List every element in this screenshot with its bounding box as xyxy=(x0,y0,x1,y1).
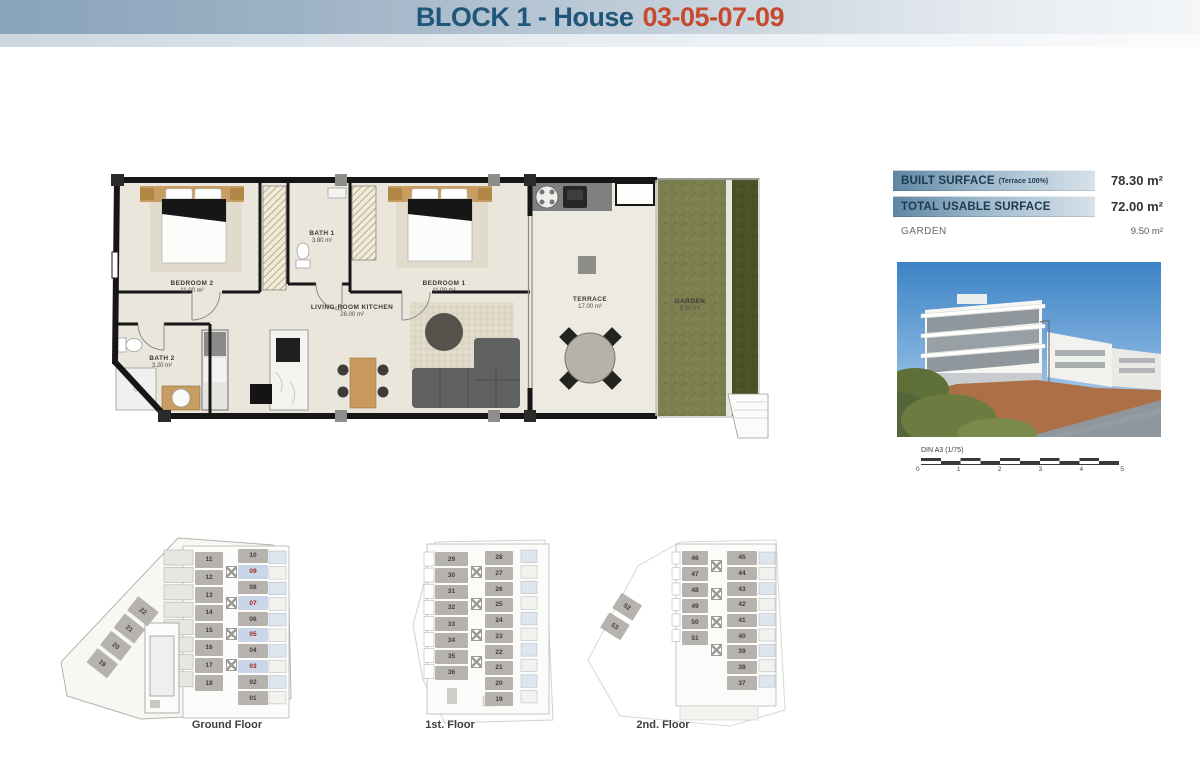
elevator-icon xyxy=(471,656,482,668)
room-label-living: LIVING-ROOM KITCHEN 26.00 m² xyxy=(297,304,407,318)
scale-bar-segments xyxy=(921,461,1119,464)
unit: 42 xyxy=(727,598,757,612)
elevator-icon xyxy=(711,644,722,656)
elevator-icon xyxy=(226,566,237,578)
unit: 34 xyxy=(435,633,468,647)
elevator-icon xyxy=(711,588,722,600)
second-floor-left-units: 464748495051 xyxy=(682,551,708,645)
elevator-icon xyxy=(711,616,722,628)
room-label-terrace: TERRACE 17.00 m² xyxy=(560,296,620,310)
unit: 10 xyxy=(238,549,268,563)
room-label-bath2: BATH 2 3.20 m² xyxy=(132,355,192,369)
first-floor-label: 1st. Floor xyxy=(385,719,515,731)
brochure-page: BLOCK 1 - House 03-05-07-09 xyxy=(0,0,1200,760)
unit: 46 xyxy=(682,551,708,565)
surface-row-band: BUILT SURFACE (Terrace 100%) xyxy=(893,170,1095,191)
second-floor-right-units: 454443424140393837 xyxy=(727,551,757,690)
unit: 09 xyxy=(238,565,268,579)
unit: 16 xyxy=(195,640,223,656)
unit: 50 xyxy=(682,615,708,629)
unit: 44 xyxy=(727,567,757,581)
scale-label: DIN A3 (1/75) xyxy=(921,447,963,454)
surface-row-usable: TOTAL USABLE SURFACE 72.00 m² xyxy=(893,196,1165,217)
wardrobe-icon xyxy=(263,186,286,290)
sofa-icon xyxy=(410,302,520,408)
unit: 20 xyxy=(485,677,513,691)
unit: 28 xyxy=(485,551,513,565)
unit: 13 xyxy=(195,587,223,603)
ground-floor-label: Ground Floor xyxy=(162,719,292,731)
tick: 1 xyxy=(957,466,961,473)
unit: 45 xyxy=(727,551,757,565)
surface-row-band: TOTAL USABLE SURFACE xyxy=(893,196,1095,217)
unit: 19 xyxy=(485,692,513,706)
stairs-icon xyxy=(728,394,768,438)
unit: 49 xyxy=(682,599,708,613)
tick: 2 xyxy=(998,466,1002,473)
unit: 03 xyxy=(238,660,268,674)
unit: 27 xyxy=(485,567,513,581)
surface-value: 72.00 m² xyxy=(1111,196,1163,217)
elevator-icon xyxy=(471,566,482,578)
room-label-bedroom2: BEDROOM 2 11.00 m² xyxy=(152,280,232,294)
unit: 06 xyxy=(238,612,268,626)
unit: 32 xyxy=(435,601,468,615)
surface-label: GARDEN xyxy=(901,226,947,237)
tick: 3 xyxy=(1039,466,1043,473)
surface-row-built: BUILT SURFACE (Terrace 100%) 78.30 m² xyxy=(893,170,1165,191)
first-floor-right-units: 28272625242322212019 xyxy=(485,551,513,706)
unit: 21 xyxy=(485,661,513,675)
unit: 25 xyxy=(485,598,513,612)
elevator-icon xyxy=(226,659,237,671)
surface-value: 9.50 m² xyxy=(1131,222,1163,240)
scale-ticks: 012345 xyxy=(916,466,1124,473)
unit: 38 xyxy=(727,661,757,675)
unit: 26 xyxy=(485,582,513,596)
unit: 47 xyxy=(682,567,708,581)
unit: 02 xyxy=(238,675,268,689)
unit: 36 xyxy=(435,666,468,680)
elevator-icon xyxy=(471,598,482,610)
unit: 04 xyxy=(238,644,268,658)
room-label-garden: GARDEN 9.50 m² xyxy=(660,298,720,312)
unit: 07 xyxy=(238,596,268,610)
unit: 40 xyxy=(727,629,757,643)
room-label-bath1: BATH 1 3.80 m² xyxy=(294,230,350,244)
tick: 5 xyxy=(1120,466,1124,473)
surface-label: TOTAL USABLE SURFACE xyxy=(901,201,1051,213)
unit: 24 xyxy=(485,614,513,628)
unit: 39 xyxy=(727,645,757,659)
elevator-icon xyxy=(711,560,722,572)
unit: 08 xyxy=(238,581,268,595)
unit: 18 xyxy=(195,675,223,691)
surface-label: BUILT SURFACE xyxy=(901,175,995,187)
unit: 43 xyxy=(727,582,757,596)
elevator-icon xyxy=(226,628,237,640)
unit: 22 xyxy=(485,645,513,659)
unit: 17 xyxy=(195,658,223,674)
unit: 29 xyxy=(435,552,468,566)
elevator-icon xyxy=(226,597,237,609)
unit: 48 xyxy=(682,583,708,597)
tick: 4 xyxy=(1080,466,1084,473)
unit: 05 xyxy=(238,628,268,642)
bedroom2-bed-icon xyxy=(140,186,244,272)
ground-floor-mid-units: 1112131415161718 xyxy=(195,552,223,691)
header-banner-fade xyxy=(0,34,1200,47)
unit: 01 xyxy=(238,691,268,705)
unit: 15 xyxy=(195,623,223,639)
page-title-houses: 03-05-07-09 xyxy=(642,2,784,33)
building-photo xyxy=(897,262,1161,437)
surface-row-garden: GARDEN 9.50 m² xyxy=(893,222,1165,240)
tick: 0 xyxy=(916,466,920,473)
unit: 12 xyxy=(195,570,223,586)
unit: 35 xyxy=(435,650,468,664)
first-floor-left-units: 2930313233343536 xyxy=(435,552,468,680)
unit: 14 xyxy=(195,605,223,621)
unit: 23 xyxy=(485,630,513,644)
unit: 30 xyxy=(435,568,468,582)
unit: 51 xyxy=(682,631,708,645)
page-title: BLOCK 1 - House xyxy=(416,2,634,33)
elevator-icon xyxy=(471,629,482,641)
scale-bar xyxy=(921,458,1119,465)
room-label-bedroom1: BEDROOM 1 11.00 m² xyxy=(404,280,484,294)
surface-value: 78.30 m² xyxy=(1111,170,1163,191)
second-floor-label: 2nd. Floor xyxy=(598,719,728,731)
unit: 41 xyxy=(727,614,757,628)
ground-floor-right-units: 10090807060504030201 xyxy=(238,549,268,705)
bedroom1-bed-icon xyxy=(388,186,492,268)
unit: 11 xyxy=(195,552,223,568)
unit: 33 xyxy=(435,617,468,631)
surface-note: (Terrace 100%) xyxy=(999,178,1048,185)
unit: 37 xyxy=(727,676,757,690)
header-banner: BLOCK 1 - House 03-05-07-09 xyxy=(0,0,1200,34)
unit: 31 xyxy=(435,585,468,599)
wardrobe-icon xyxy=(352,186,376,260)
